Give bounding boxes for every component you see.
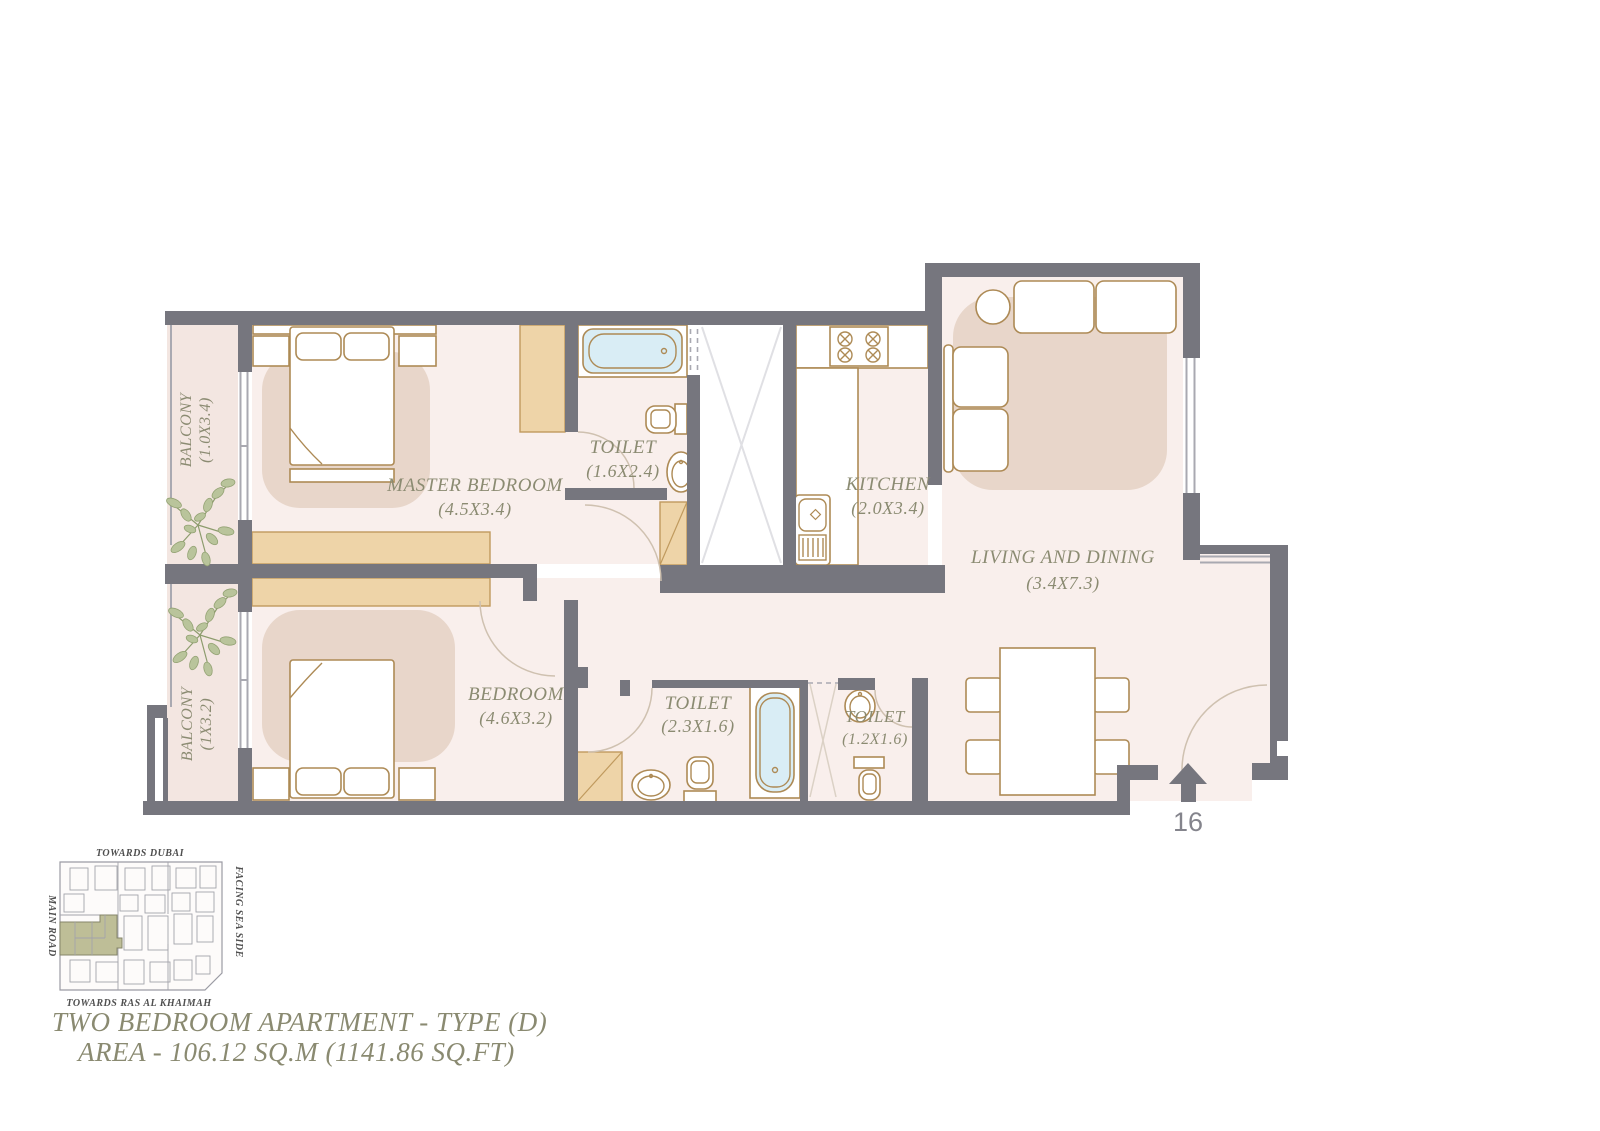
room-dims-toilet-shared: (2.3X1.6) <box>661 716 734 737</box>
room-label-master-bedroom: MASTER BEDROOM <box>386 475 563 496</box>
chair <box>966 678 1002 712</box>
unit-number: 16 <box>1173 807 1203 837</box>
living-extension-floor <box>1183 554 1270 763</box>
room-dims-balcony-bedroom: (1X3.2) <box>198 698 215 751</box>
map-label-right: FACING SEA SIDE <box>233 865 244 958</box>
room-dims-balcony-master: (1.0X3.4) <box>197 397 214 463</box>
room-label-bedroom: BEDROOM <box>468 684 565 705</box>
dressing-cabinet <box>660 502 687 565</box>
plan-area: AREA - 106.12 SQ.M (1141.86 SQ.FT) <box>76 1037 515 1067</box>
pillow <box>296 768 341 795</box>
plan-title: TWO BEDROOM APARTMENT - TYPE (D) <box>52 1007 547 1037</box>
bed-bench <box>290 469 394 482</box>
side-table <box>976 290 1010 324</box>
nightstand <box>399 768 435 800</box>
pillow <box>344 768 389 795</box>
chair <box>966 740 1002 774</box>
nightstand <box>253 336 289 366</box>
floorplan-page: 16 MASTER BEDROOM (4.5X3.4) TOILET (1.6X… <box>0 0 1600 1131</box>
room-dims-toilet-guest: (1.2X1.6) <box>842 731 908 748</box>
pillow <box>296 333 341 360</box>
chair <box>1093 678 1129 712</box>
kitchen-sink <box>795 495 830 565</box>
shower-cabinet <box>577 752 622 802</box>
dining-table <box>1000 648 1095 795</box>
map-label-top: TOWARDS DUBAI <box>96 848 185 859</box>
pillow <box>344 333 389 360</box>
room-dims-kitchen: (2.0X3.4) <box>851 498 924 519</box>
room-dims-bedroom: (4.6X3.2) <box>479 708 552 729</box>
room-dims-toilet-master: (1.6X2.4) <box>586 461 659 482</box>
wall-notch <box>1277 741 1289 756</box>
floorplan-canvas: 16 MASTER BEDROOM (4.5X3.4) TOILET (1.6X… <box>0 0 1600 1131</box>
nightstand <box>399 336 436 366</box>
room-label-balcony-master: BALCONY <box>178 391 195 467</box>
room-label-living-dining: LIVING AND DINING <box>970 547 1155 568</box>
room-label-toilet-master: TOILET <box>590 437 657 458</box>
wc <box>684 757 716 802</box>
bathtub <box>750 686 800 798</box>
washbasin <box>632 770 670 800</box>
master-wardrobe <box>520 325 565 432</box>
room-label-toilet-guest: TOILET <box>845 707 906 726</box>
room-label-balcony-bedroom: BALCONY <box>179 685 196 761</box>
location-map: TOWARDS DUBAI TOWARDS RAS AL KHAIMAH MAI… <box>46 848 244 1009</box>
room-label-kitchen: KITCHEN <box>845 474 931 495</box>
wc <box>646 404 687 434</box>
room-label-toilet-shared: TOILET <box>665 693 732 714</box>
title-block: TWO BEDROOM APARTMENT - TYPE (D) AREA - … <box>52 1007 547 1067</box>
room-dims-living-dining: (3.4X7.3) <box>1026 573 1099 594</box>
nightstand <box>253 768 289 800</box>
room-dims-master-bedroom: (4.5X3.4) <box>438 499 511 520</box>
stove-icon <box>830 327 888 366</box>
map-label-left: MAIN ROAD <box>46 894 57 956</box>
